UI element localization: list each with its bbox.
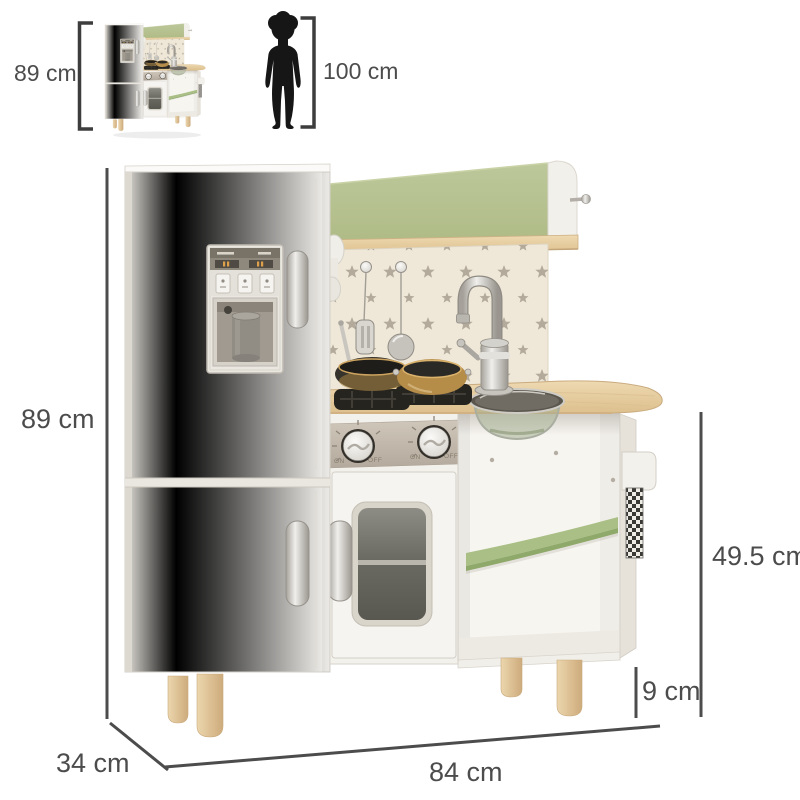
- product-dimension-figure: ON OFF ON OFF: [0, 0, 800, 800]
- overall-height-label: 89 cm: [21, 404, 95, 434]
- figure-svg: ON OFF ON OFF: [0, 0, 800, 800]
- width-dimension-line: [165, 726, 660, 767]
- child-height-label: 100 cm: [323, 58, 398, 84]
- thumbnail-shadow: [113, 132, 201, 139]
- child-height-bracket: [301, 18, 315, 127]
- thumbnail-height-bracket: [80, 23, 94, 129]
- reference-row: 89 cm 100 cm: [14, 11, 398, 139]
- overall-width-label: 84 cm: [429, 757, 503, 787]
- leg-height-label: 9 cm: [642, 676, 701, 706]
- child-silhouette: [265, 11, 300, 129]
- main-product-illustration: [125, 161, 662, 737]
- counter-height-label: 49.5 cm: [712, 541, 800, 571]
- thumbnail-product-illustration: [105, 23, 205, 131]
- depth-label: 34 cm: [56, 748, 130, 778]
- thumbnail-height-label: 89 cm: [14, 60, 77, 86]
